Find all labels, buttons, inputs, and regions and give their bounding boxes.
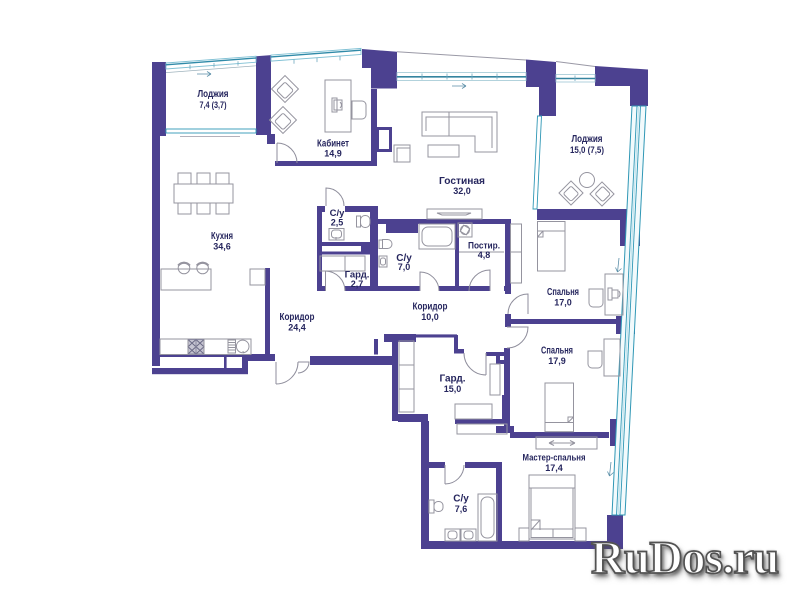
svg-text:Гард.: Гард.	[439, 374, 465, 385]
svg-text:Спальня: Спальня	[547, 287, 579, 298]
svg-text:17,4: 17,4	[545, 463, 563, 473]
svg-text:15,0 (7,5): 15,0 (7,5)	[570, 145, 604, 155]
svg-text:34,6: 34,6	[213, 242, 231, 252]
svg-text:Лоджия: Лоджия	[572, 134, 603, 145]
svg-text:С/у: С/у	[453, 494, 469, 505]
svg-text:2,5: 2,5	[331, 218, 344, 228]
svg-text:24,4: 24,4	[288, 323, 306, 333]
svg-text:7,6: 7,6	[455, 504, 468, 514]
svg-text:2,7: 2,7	[351, 279, 364, 289]
svg-text:7,4 (3,7): 7,4 (3,7)	[200, 100, 227, 110]
svg-text:15,0: 15,0	[444, 384, 462, 394]
svg-text:17,0: 17,0	[554, 298, 572, 308]
svg-text:4,8: 4,8	[478, 250, 491, 260]
svg-text:7,0: 7,0	[398, 262, 411, 272]
svg-text:10,0: 10,0	[421, 312, 439, 322]
svg-text:Коридор: Коридор	[280, 312, 315, 323]
svg-text:Кухня: Кухня	[211, 231, 233, 242]
svg-text:Лоджия: Лоджия	[198, 89, 229, 100]
svg-text:17,9: 17,9	[548, 356, 566, 366]
svg-text:Спальня: Спальня	[541, 346, 573, 357]
svg-text:Мастер-спальня: Мастер-спальня	[523, 453, 586, 464]
svg-text:Коридор: Коридор	[413, 302, 448, 313]
svg-text:32,0: 32,0	[453, 186, 471, 196]
svg-text:14,9: 14,9	[324, 149, 342, 159]
